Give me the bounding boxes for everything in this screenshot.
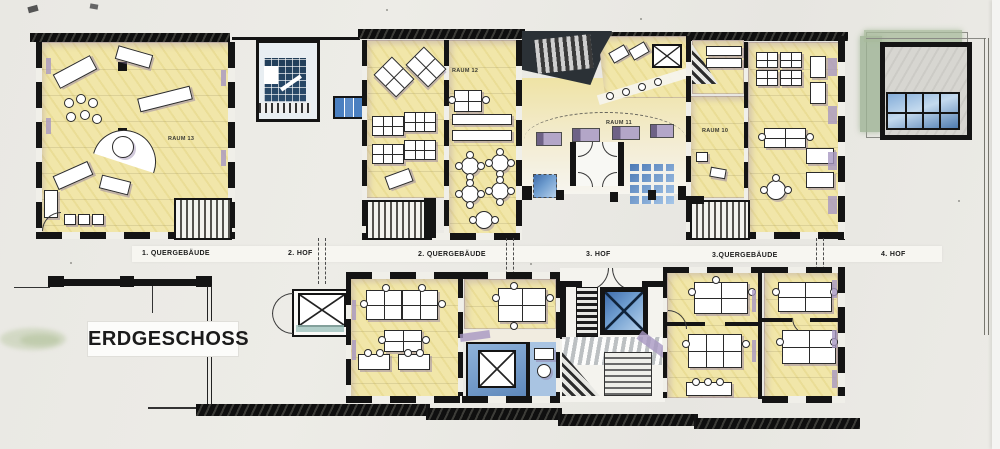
column xyxy=(556,190,564,200)
table-long xyxy=(452,114,512,125)
shelf xyxy=(706,46,742,56)
entry-vestibule-west xyxy=(292,289,352,337)
chair xyxy=(477,162,485,170)
window-triple xyxy=(333,96,365,119)
planter xyxy=(572,128,600,142)
wall-pier xyxy=(48,276,64,287)
meeting-table xyxy=(764,128,806,148)
chair xyxy=(364,349,372,357)
band-label-3-hof: 3. HOF xyxy=(586,251,611,258)
chair xyxy=(496,148,504,156)
chair xyxy=(404,349,412,357)
stair-flight xyxy=(576,287,598,337)
floor-tile xyxy=(296,325,344,332)
toilet xyxy=(537,364,551,378)
block-b-north-wall xyxy=(462,272,560,279)
chair xyxy=(485,159,493,167)
table-round-group xyxy=(456,180,482,206)
stair-core-wall xyxy=(690,196,704,204)
stair-tower xyxy=(256,40,320,122)
chair xyxy=(455,190,463,198)
wc-cell xyxy=(528,342,558,398)
room-label-raum-10: RAUM 10 xyxy=(702,129,728,135)
chair xyxy=(360,300,368,308)
partition-wall xyxy=(762,318,792,322)
wall-shadow xyxy=(352,340,356,360)
stairwell xyxy=(366,200,428,240)
block-d-east-wall xyxy=(838,267,845,399)
band-label-3-quergebaeude: 3.QUERGEBÄUDE xyxy=(712,252,778,259)
chair xyxy=(510,282,518,290)
axis-label-band xyxy=(132,246,942,262)
table-round-group xyxy=(470,206,496,232)
table-round xyxy=(766,180,786,200)
stair-run xyxy=(604,352,652,396)
wall-shadow xyxy=(352,300,356,320)
band-label-4-hof: 4. HOF xyxy=(881,251,906,258)
desk xyxy=(384,330,422,352)
skylight-shaft xyxy=(652,44,682,68)
vestibule-wall xyxy=(618,142,624,186)
wall-pier xyxy=(120,276,134,287)
table-round-group xyxy=(762,176,788,202)
desk xyxy=(810,82,826,104)
block-c-west-wall xyxy=(663,272,667,398)
chair xyxy=(742,340,750,348)
chair xyxy=(378,336,386,344)
bench xyxy=(64,214,76,225)
floor-plan-sheet: RAUM 13 RAUM 12 xyxy=(0,0,1000,449)
chair xyxy=(66,112,76,122)
wall-shadow xyxy=(46,58,51,74)
speck xyxy=(70,262,72,264)
balcony-grate xyxy=(259,103,311,113)
chair xyxy=(485,187,493,195)
column xyxy=(610,192,618,202)
boundary-line xyxy=(988,38,989,335)
desk-cluster xyxy=(372,144,404,164)
desk xyxy=(782,330,836,364)
vegetation xyxy=(860,36,882,132)
chair xyxy=(692,378,700,386)
chair xyxy=(622,88,630,96)
chair xyxy=(76,94,86,104)
table-round-group xyxy=(456,152,482,178)
desk xyxy=(366,290,402,320)
wall-shadow xyxy=(828,152,837,170)
vegetation xyxy=(864,30,962,42)
vestibule-wall xyxy=(570,142,576,186)
drawing-title: ERDGESCHOSS xyxy=(88,322,238,356)
desk xyxy=(498,288,546,322)
cabinet xyxy=(696,152,708,162)
chair xyxy=(760,186,768,194)
chair xyxy=(416,349,424,357)
chair xyxy=(716,378,724,386)
wall-shadow xyxy=(752,290,756,312)
chair xyxy=(382,284,390,292)
wing-1-west-wall xyxy=(36,42,42,238)
block-b-south-wall xyxy=(462,396,560,403)
stair-core-wall xyxy=(424,198,436,238)
bench xyxy=(398,354,430,370)
chair xyxy=(688,288,696,296)
wall-shadow xyxy=(832,330,837,348)
planter xyxy=(536,132,562,146)
hall-wall xyxy=(560,281,566,339)
axis-dashed-line xyxy=(325,238,326,284)
chair xyxy=(482,96,490,104)
chair xyxy=(606,92,614,100)
street-facade xyxy=(560,414,696,426)
room-label-raum-12: RAUM 12 xyxy=(452,69,478,75)
table-round-group xyxy=(486,177,512,203)
wall-shadow xyxy=(828,196,837,214)
block-a-south-wall xyxy=(346,396,464,403)
chair xyxy=(466,179,474,187)
axis-dashed-line xyxy=(318,238,319,284)
chair xyxy=(496,176,504,184)
chair xyxy=(80,110,90,120)
table-long xyxy=(452,130,512,141)
chair xyxy=(712,276,720,284)
desk xyxy=(780,52,802,68)
shaft-x xyxy=(298,293,346,327)
wall-shadow xyxy=(832,280,837,298)
block-divider-wall xyxy=(758,267,762,399)
wall-shadow xyxy=(752,340,756,362)
speck xyxy=(958,200,960,202)
chair xyxy=(492,294,500,302)
wall-line xyxy=(148,407,198,409)
boundary-line xyxy=(866,38,986,39)
wall-shadow xyxy=(221,150,226,166)
wall-shadow xyxy=(832,370,837,388)
column xyxy=(648,190,656,200)
chair xyxy=(772,288,780,296)
desk xyxy=(756,52,778,68)
chair xyxy=(546,294,554,302)
band-label-1-quergebaeude: 1. QUERGEBÄUDE xyxy=(142,250,210,257)
door-swing xyxy=(272,293,293,314)
block-a-north-wall xyxy=(346,272,464,279)
water-basin xyxy=(533,174,557,198)
chair xyxy=(422,336,430,344)
boundary-line xyxy=(984,38,985,335)
wing-3-east-wall xyxy=(838,36,845,240)
speck xyxy=(386,9,388,11)
desk-cluster xyxy=(372,116,404,136)
stair-treads xyxy=(534,34,593,74)
pencil-mark xyxy=(27,5,38,13)
green-smudge xyxy=(20,334,60,346)
chair xyxy=(418,284,426,292)
column xyxy=(522,186,532,200)
chair xyxy=(784,186,792,194)
chair xyxy=(507,187,515,195)
bench xyxy=(92,214,104,225)
stairwell xyxy=(690,200,750,240)
facade-wall-north xyxy=(358,29,525,39)
block-a-west-wall xyxy=(346,279,351,399)
door-swing xyxy=(272,313,293,334)
desk xyxy=(806,172,834,188)
chair xyxy=(654,78,662,86)
chair xyxy=(438,300,446,308)
street-facade xyxy=(428,408,560,420)
wall-shadow xyxy=(221,70,226,86)
chair xyxy=(776,338,784,346)
stair-landing xyxy=(264,66,278,84)
wall-line xyxy=(152,286,153,313)
shelf xyxy=(706,58,742,68)
partition-wall xyxy=(725,322,760,326)
desk xyxy=(694,282,748,314)
wall-shadow xyxy=(828,106,837,124)
table-round xyxy=(112,136,134,158)
chair xyxy=(64,98,74,108)
chair xyxy=(704,378,712,386)
planter xyxy=(650,124,674,138)
block-d-south-wall xyxy=(762,396,845,403)
street-facade xyxy=(696,418,860,429)
desk-cluster xyxy=(404,140,436,160)
wall-shadow xyxy=(46,118,51,134)
wall-pier xyxy=(196,276,212,287)
band-label-2-hof: 2. HOF xyxy=(288,250,313,257)
band-label-2-quergebaeude: 2. QUERGEBÄUDE xyxy=(418,251,486,258)
chair xyxy=(510,322,518,330)
desk xyxy=(402,290,438,320)
wing-3-room-raum-10 xyxy=(690,96,746,198)
room-label-raum-13: RAUM 13 xyxy=(168,137,194,143)
desk xyxy=(780,70,802,86)
scan-edge xyxy=(992,0,1000,449)
chair xyxy=(469,216,477,224)
chair xyxy=(92,114,102,124)
column xyxy=(118,62,127,71)
bench xyxy=(78,214,90,225)
chair xyxy=(88,98,98,108)
work-table xyxy=(688,334,742,368)
elevator-shaft xyxy=(600,287,648,335)
chair xyxy=(491,216,499,224)
desk xyxy=(810,56,826,78)
bathroom xyxy=(466,342,528,402)
wall-line xyxy=(14,287,50,288)
table-round-group xyxy=(486,149,512,175)
planter xyxy=(612,126,640,140)
desk xyxy=(756,70,778,86)
sink xyxy=(534,348,554,360)
chair xyxy=(806,133,814,141)
speck xyxy=(530,263,532,265)
chair xyxy=(376,349,384,357)
stairwell xyxy=(174,198,232,240)
partition-wall xyxy=(810,318,838,322)
block-c-north-wall xyxy=(663,267,762,273)
bench xyxy=(358,354,390,370)
chair xyxy=(772,174,780,182)
chair xyxy=(682,340,690,348)
chair xyxy=(466,151,474,159)
pencil-mark xyxy=(90,3,99,9)
chair xyxy=(448,96,456,104)
chair xyxy=(638,83,646,91)
glass-house-glazing xyxy=(886,92,960,130)
speck xyxy=(640,18,642,20)
street-facade xyxy=(196,404,428,416)
wall-shadow xyxy=(828,58,837,76)
chair xyxy=(455,162,463,170)
facade-wall-north xyxy=(30,33,230,42)
chair xyxy=(758,133,766,141)
chair xyxy=(507,159,515,167)
desk-cluster xyxy=(404,112,436,132)
chair xyxy=(477,190,485,198)
chair xyxy=(496,198,504,206)
shower-x xyxy=(478,350,516,388)
grand-stair xyxy=(522,31,612,85)
block-d-north-wall xyxy=(762,267,845,273)
conference-table xyxy=(454,90,482,112)
desk xyxy=(778,282,832,312)
